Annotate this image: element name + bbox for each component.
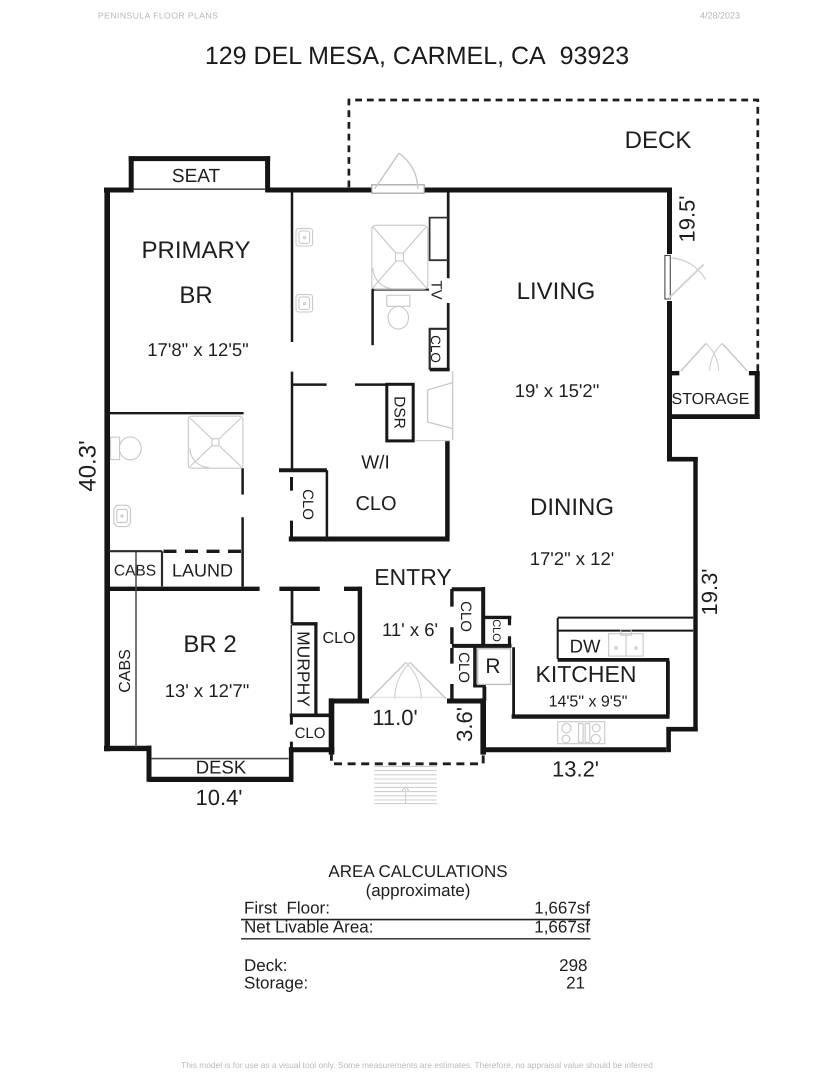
svg-text:ENTRY: ENTRY	[374, 564, 452, 590]
svg-text:(approximate): (approximate)	[366, 881, 471, 900]
svg-text:AREA CALCULATIONS: AREA CALCULATIONS	[328, 862, 507, 881]
svg-text:DESK: DESK	[196, 757, 247, 778]
svg-text:TV: TV	[428, 280, 445, 299]
svg-text:14'5" x 9'5": 14'5" x 9'5"	[549, 694, 628, 711]
svg-text:BR 2: BR 2	[183, 631, 236, 658]
svg-text:CABS: CABS	[114, 563, 156, 580]
svg-text:10.4': 10.4'	[195, 785, 242, 810]
svg-text:W/I: W/I	[361, 453, 390, 474]
svg-text:CLO: CLO	[428, 335, 443, 363]
svg-text:Net Livable Area:: Net Livable Area:	[244, 918, 373, 937]
svg-text:CLO: CLO	[455, 652, 472, 683]
svg-text:This model is for use as a vis: This model is for use as a visual tool o…	[181, 1060, 653, 1070]
svg-text:BR: BR	[179, 282, 212, 309]
svg-text:40.3': 40.3'	[75, 440, 102, 491]
svg-text:First Floor:: First Floor:	[244, 899, 330, 918]
svg-text:CLO: CLO	[457, 601, 474, 632]
svg-text:MURPHY: MURPHY	[294, 631, 314, 707]
svg-text:CLO: CLO	[323, 630, 356, 647]
svg-text:11' x 6': 11' x 6'	[382, 619, 438, 640]
svg-text:19.3': 19.3'	[697, 568, 722, 615]
svg-text:PENINSULA FLOOR PLANS: PENINSULA FLOOR PLANS	[98, 11, 218, 21]
svg-text:LAUND: LAUND	[172, 561, 233, 581]
svg-text:17'8" x 12'5": 17'8" x 12'5"	[147, 339, 248, 360]
svg-text:19.5': 19.5'	[675, 195, 700, 242]
svg-text:SEAT: SEAT	[172, 166, 221, 187]
svg-text:1,667sf: 1,667sf	[534, 918, 590, 937]
svg-text:298: 298	[559, 956, 587, 975]
svg-text:KITCHEN: KITCHEN	[536, 661, 637, 687]
svg-text:129 DEL MESA, CARMEL, CA 9392: 129 DEL MESA, CARMEL, CA 93923	[205, 42, 629, 70]
svg-text:11.0': 11.0'	[372, 705, 417, 730]
svg-text:CLO: CLO	[295, 725, 326, 742]
svg-text:PRIMARY: PRIMARY	[142, 237, 251, 264]
svg-text:DW: DW	[570, 636, 601, 657]
svg-text:DINING: DINING	[530, 494, 614, 521]
svg-text:17'2" x 12': 17'2" x 12'	[530, 548, 615, 569]
svg-text:CLO: CLO	[299, 489, 316, 520]
svg-text:Storage:: Storage:	[244, 974, 308, 993]
svg-text:DSR: DSR	[391, 396, 408, 429]
svg-text:CABS: CABS	[117, 649, 134, 693]
svg-text:Deck:: Deck:	[244, 956, 287, 975]
svg-text:21: 21	[566, 974, 585, 993]
svg-text:13' x 12'7": 13' x 12'7"	[165, 680, 250, 701]
svg-text:CLO: CLO	[355, 493, 396, 515]
svg-text:CLO: CLO	[490, 619, 502, 642]
svg-text:1,667sf: 1,667sf	[534, 899, 590, 918]
svg-text:R: R	[485, 655, 500, 678]
svg-text:3.6': 3.6'	[452, 707, 477, 742]
svg-text:STORAGE: STORAGE	[672, 391, 750, 408]
svg-text:4/28/2023: 4/28/2023	[700, 11, 740, 21]
svg-text:LIVING: LIVING	[517, 278, 596, 305]
svg-text:19' x 15'2": 19' x 15'2"	[515, 380, 600, 401]
svg-text:13.2': 13.2'	[552, 757, 599, 782]
svg-text:DECK: DECK	[625, 127, 692, 154]
